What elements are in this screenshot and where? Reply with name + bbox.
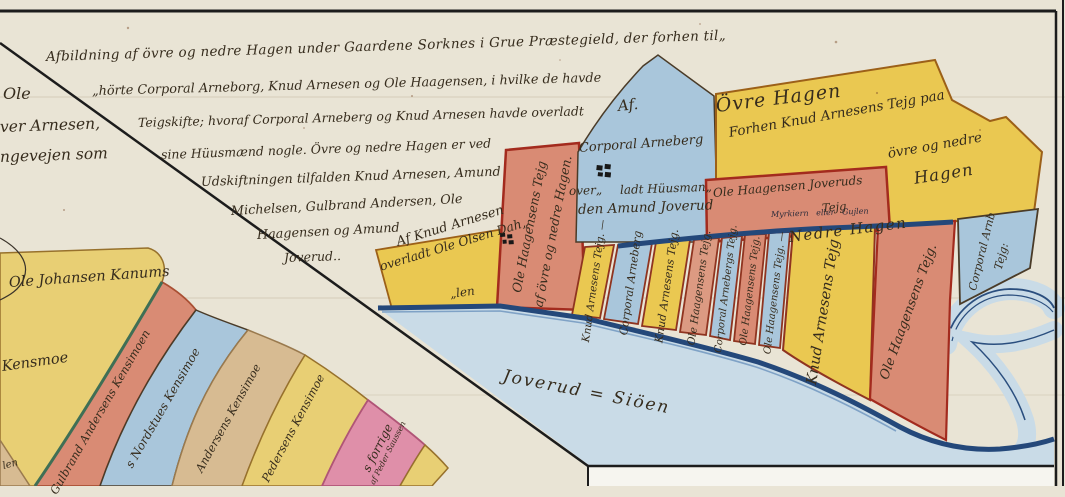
parcel-label-arneberg: over„ <box>569 184 602 198</box>
edge-text-fragment: Ole <box>3 86 31 103</box>
adjacent-map-panel <box>588 466 1054 486</box>
edge-text-fragment: ngevejen som <box>0 145 108 165</box>
historic-cadastral-map: Afbildning af övre og nedre Hagen under … <box>0 0 1065 486</box>
strip-9-red <box>870 221 955 440</box>
parcel-label-arneberg: ladt Hüusman„ <box>620 181 712 197</box>
edge-text-fragment: ver Arnesen, <box>0 116 100 136</box>
parcel-label-arneberg-af: Af. <box>617 97 639 115</box>
description-line: Joverud.. <box>284 249 341 264</box>
